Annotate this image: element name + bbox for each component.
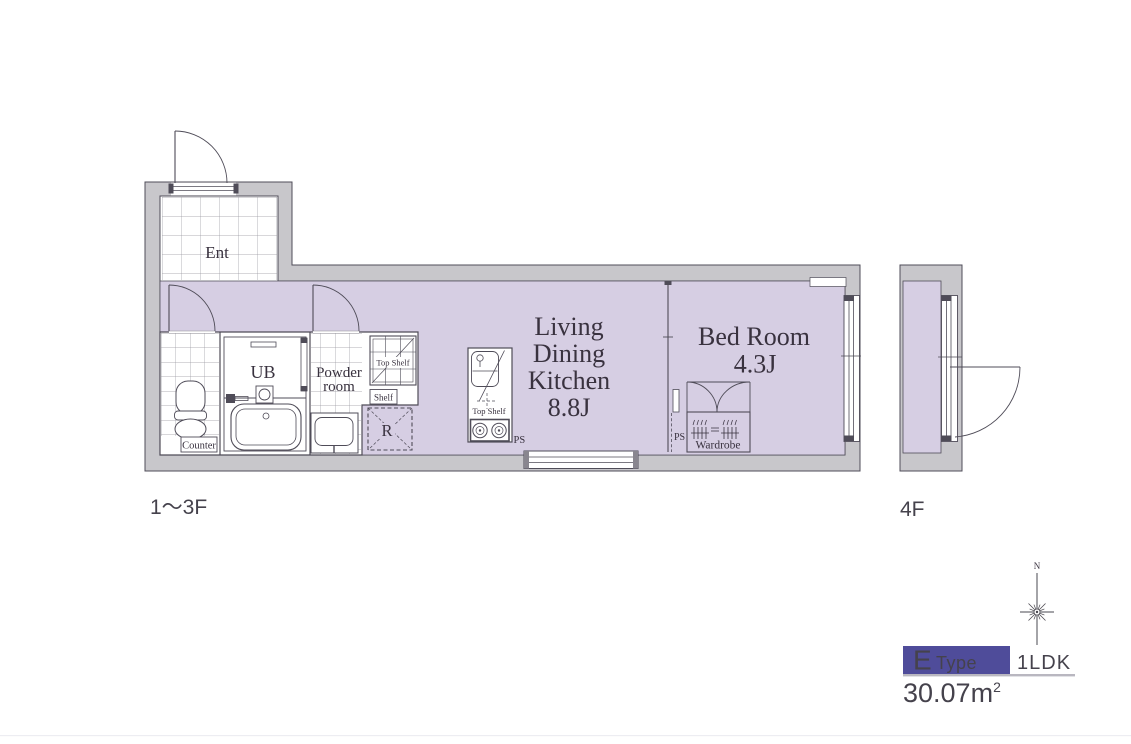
counter-label: Counter (182, 441, 216, 452)
shelf-box: Shelf (370, 390, 397, 405)
layout-label: 1LDK (1017, 652, 1071, 674)
ldk-label-1: Living (534, 312, 603, 341)
bath-sliding-door (301, 338, 308, 391)
floor-label-right: 4F (900, 498, 925, 521)
unit-bath-label: UB (250, 362, 275, 382)
entrance-tile-floor (162, 197, 277, 280)
wardrobe-label: Wardrobe (695, 440, 740, 452)
type-word: Type (936, 653, 977, 673)
floor-label-left: 1〜3F (150, 496, 207, 519)
wall-beam-step (810, 278, 846, 287)
area-label: 30.07m2 (903, 678, 1001, 708)
type-letter: E (913, 645, 932, 676)
refrigerator-label: R (381, 421, 392, 440)
shelf-label: Shelf (374, 393, 393, 403)
bathtub (231, 404, 301, 450)
entrance-label: Ent (205, 243, 229, 262)
legend-underline (903, 674, 1075, 676)
entrance-room: Ent (162, 131, 277, 280)
powder-sink (311, 413, 358, 453)
powder-room-label-2: room (323, 379, 355, 395)
ldk-size-label: 8.8J (548, 393, 591, 422)
bedroom-ps-label: PS (674, 432, 685, 443)
top-shelf-box: Top Shelf (370, 336, 416, 385)
floorplan-canvas: Ent Counter (0, 0, 1131, 744)
bottom-hairline (0, 735, 1131, 736)
ldk-label-2: Dining (533, 339, 605, 368)
compass-north-label: N (1034, 561, 1041, 571)
ldk-label-3: Kitchen (528, 366, 610, 395)
kitchen-ps-label: PS (514, 435, 526, 446)
bedroom-label: Bed Room (698, 322, 810, 351)
kitchen-top-shelf-label: Top Shelf (472, 406, 505, 416)
ldk-window (524, 451, 638, 469)
compass-rose-icon: N (1020, 561, 1054, 645)
fourth-floor-fragment (900, 265, 1020, 471)
top-shelf-label: Top Shelf (376, 358, 409, 368)
type-legend: E Type 1LDK 30.07m2 (903, 645, 1075, 709)
stove (471, 420, 510, 442)
entrance-door (169, 131, 239, 195)
bedroom-size-label: 4.3J (734, 350, 777, 379)
toilet-fixture (175, 381, 207, 439)
bedroom-window (841, 296, 861, 442)
